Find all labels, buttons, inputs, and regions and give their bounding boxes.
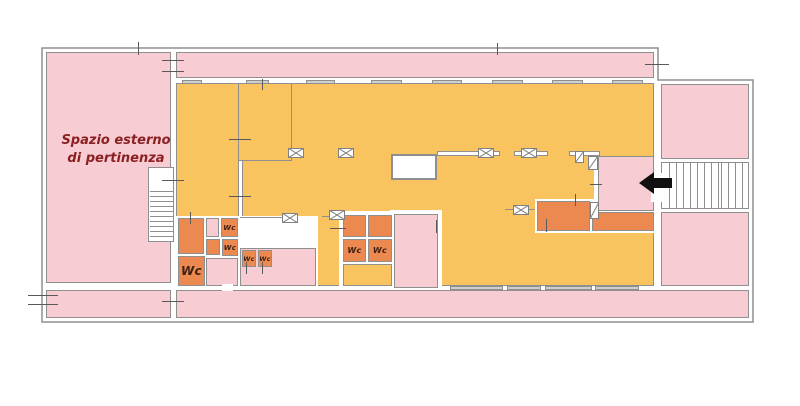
door-icon xyxy=(590,202,599,219)
corridor-wc xyxy=(206,258,238,286)
entrance-arrow-shaft xyxy=(654,178,672,188)
outdoor-area-label-line2: di pertinenza xyxy=(58,150,174,168)
stair-step xyxy=(690,163,691,208)
room-top-right xyxy=(661,84,749,159)
service-room xyxy=(343,215,366,237)
stair-step xyxy=(150,236,173,237)
window-sill xyxy=(552,80,583,84)
dimension-tick xyxy=(162,301,184,302)
window-sill xyxy=(507,286,541,290)
dimension-tick xyxy=(162,180,184,181)
dimension-tick xyxy=(645,64,669,65)
column-icon xyxy=(513,205,529,215)
door-icon xyxy=(575,151,584,163)
floor-plan: Wc Wc Wc Wc Wc Wc Wc xyxy=(0,0,800,406)
stair-step xyxy=(150,226,173,227)
service-room xyxy=(537,201,590,231)
strip-bottom-left xyxy=(46,290,171,318)
dimension-tick xyxy=(162,60,184,61)
column-icon xyxy=(282,213,298,223)
light-well xyxy=(394,214,438,288)
service-room xyxy=(592,212,654,231)
stair-step xyxy=(718,163,719,208)
stair-step xyxy=(150,206,173,207)
stair-step xyxy=(150,231,173,232)
dimension-tick xyxy=(246,262,247,274)
stair-step xyxy=(676,163,677,208)
window-sill xyxy=(306,80,335,84)
dimension-tick xyxy=(436,220,437,233)
stair-step xyxy=(711,163,712,208)
wc-label: Wc xyxy=(347,246,361,255)
column-icon xyxy=(288,148,304,158)
stair-step xyxy=(150,211,173,212)
stair-step xyxy=(150,191,173,192)
dimension-tick xyxy=(229,139,251,140)
wc-room: Wc xyxy=(221,218,238,237)
stair-step xyxy=(735,163,736,208)
wc-label: Wc xyxy=(259,255,271,263)
wc-label: Wc xyxy=(373,246,387,255)
window-sill xyxy=(545,286,592,290)
window-sill xyxy=(182,80,202,84)
service-room xyxy=(206,239,220,255)
room-small xyxy=(343,264,392,286)
service-room xyxy=(368,215,392,237)
column-icon xyxy=(478,148,494,158)
window-sill xyxy=(450,286,503,290)
dimension-tick xyxy=(229,196,251,197)
column-icon xyxy=(329,210,345,220)
stair-step xyxy=(697,163,698,208)
window-sill xyxy=(492,80,523,84)
outdoor-area-label: Spazio esterno di pertinenza xyxy=(58,132,174,167)
dimension-tick xyxy=(590,184,602,185)
anteroom xyxy=(206,218,219,237)
stair-step xyxy=(721,163,722,208)
stair-step xyxy=(742,163,743,208)
dimension-tick xyxy=(497,43,498,55)
wc-room: Wc xyxy=(242,250,256,267)
dimension-tick xyxy=(138,42,139,55)
stair-step xyxy=(728,163,729,208)
interior-wall xyxy=(238,160,243,219)
wc-label: Wc xyxy=(224,244,236,252)
wc-label: Wc xyxy=(223,224,235,232)
stair-step xyxy=(150,221,173,222)
strip-bottom xyxy=(176,290,749,318)
dimension-tick xyxy=(330,228,346,229)
dimension-tick xyxy=(28,304,58,305)
window-sill xyxy=(432,80,462,84)
corridor-top-strip xyxy=(176,52,654,78)
room-interior-top xyxy=(238,83,292,161)
stair-step xyxy=(150,196,173,197)
window-sill xyxy=(595,286,639,290)
dimension-tick xyxy=(190,212,191,224)
elevator-box xyxy=(391,154,437,180)
interior-wall xyxy=(240,217,286,218)
service-room xyxy=(178,218,204,254)
column-icon xyxy=(521,148,537,158)
door-opening xyxy=(222,284,233,291)
stair-step xyxy=(704,163,705,208)
wc-room: Wc xyxy=(178,256,205,286)
stair-step xyxy=(150,216,173,217)
window-sill xyxy=(612,80,643,84)
dimension-tick xyxy=(162,71,184,72)
window-sill xyxy=(371,80,402,84)
door-icon xyxy=(588,156,598,170)
wc-room: Wc xyxy=(222,239,238,256)
outdoor-area-label-line1: Spazio esterno xyxy=(58,132,174,150)
window-sill xyxy=(246,80,269,84)
wc-room: Wc xyxy=(258,250,272,267)
dimension-tick xyxy=(546,219,547,232)
entrance-arrow-icon xyxy=(639,172,654,194)
wc-room: Wc xyxy=(343,239,366,262)
dimension-tick xyxy=(262,79,263,90)
wc-room: Wc xyxy=(368,239,392,262)
dimension-tick xyxy=(262,262,263,274)
wc-label: Wc xyxy=(243,255,255,263)
dimension-tick xyxy=(28,295,58,296)
stair-step xyxy=(683,163,684,208)
room-bottom-right xyxy=(661,212,749,286)
wc-label: Wc xyxy=(181,264,202,278)
stair-step xyxy=(150,201,173,202)
column-icon xyxy=(338,148,354,158)
dimension-tick xyxy=(575,194,576,206)
